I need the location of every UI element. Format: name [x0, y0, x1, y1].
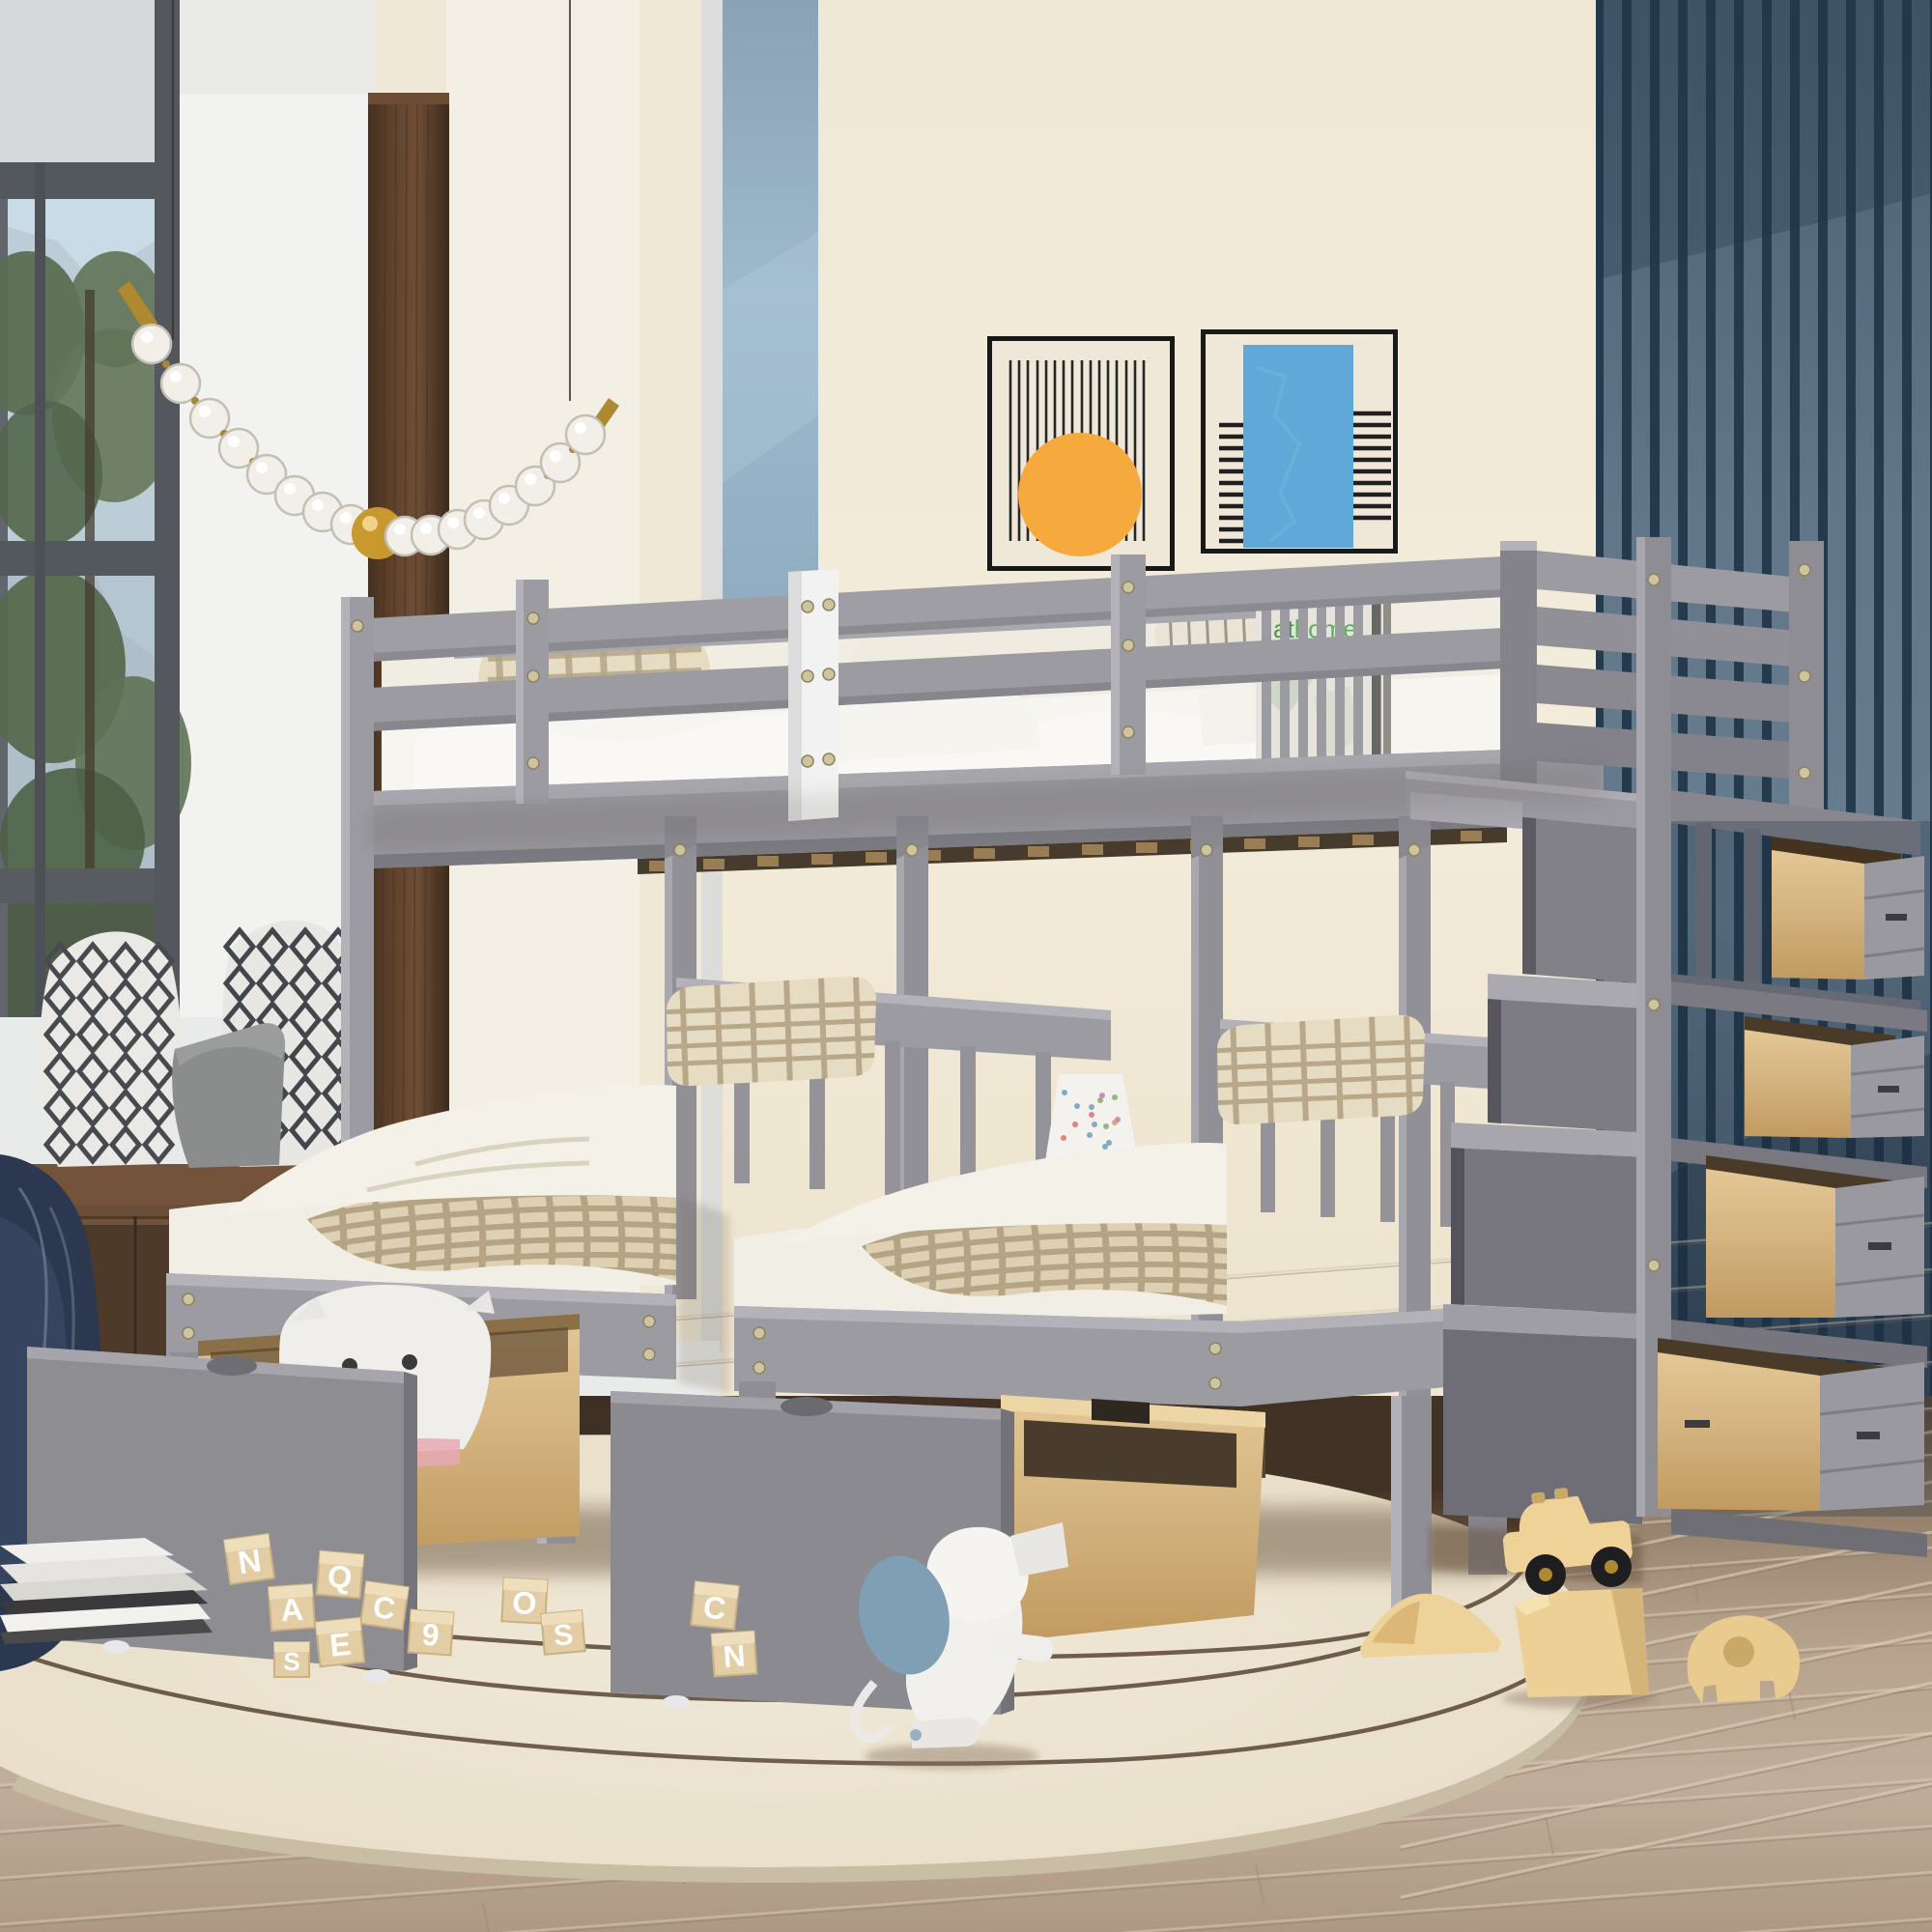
svg-text:E: E: [327, 1627, 353, 1664]
svg-text:A: A: [279, 1592, 304, 1629]
svg-text:N: N: [236, 1543, 264, 1581]
svg-text:O: O: [511, 1585, 537, 1621]
svg-text:S: S: [553, 1619, 575, 1653]
svg-text:9: 9: [421, 1617, 440, 1653]
svg-text:S: S: [283, 1649, 299, 1676]
svg-text:N: N: [722, 1637, 746, 1674]
svg-text:C: C: [701, 1589, 727, 1626]
svg-text:Q: Q: [327, 1558, 354, 1595]
